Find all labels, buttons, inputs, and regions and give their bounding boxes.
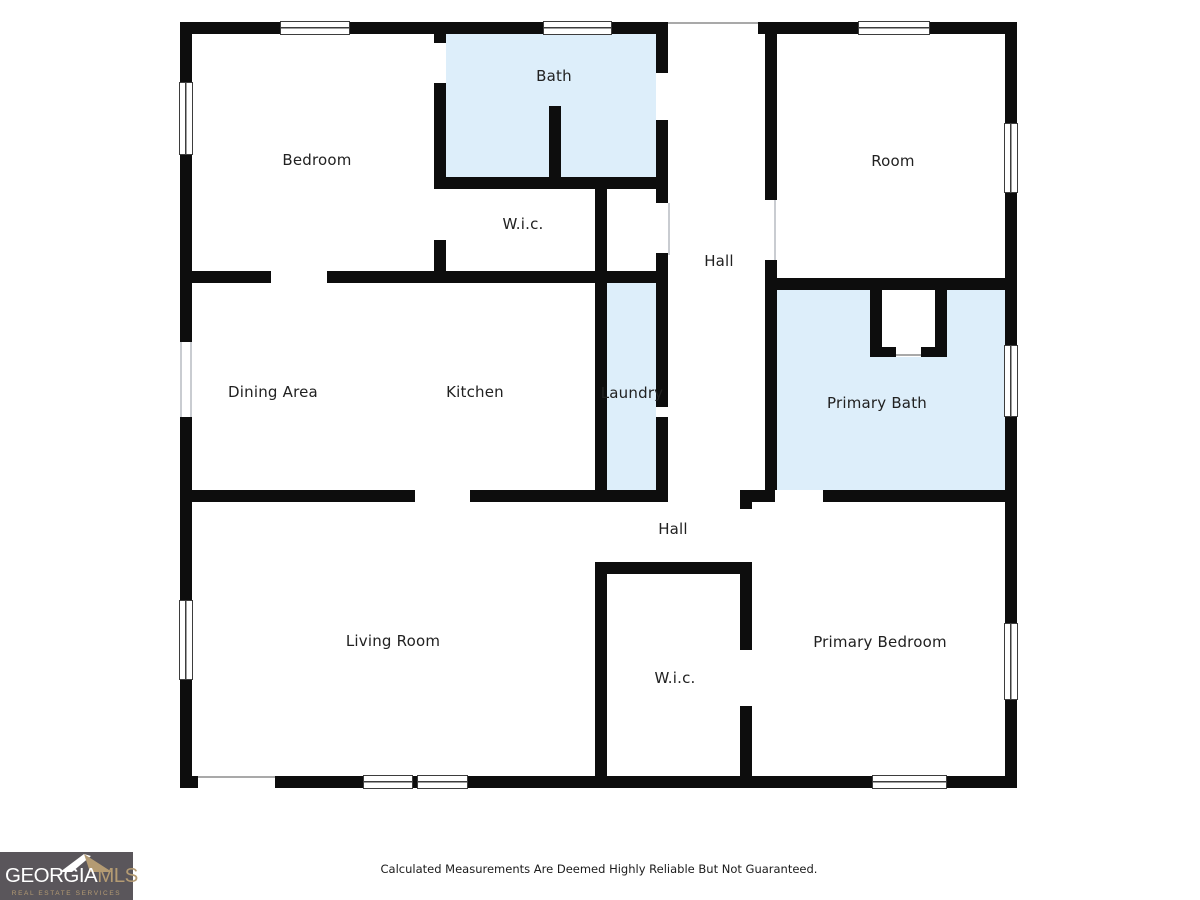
room-label-bath: Bath bbox=[454, 67, 654, 85]
wall bbox=[882, 347, 896, 357]
room-label-primary-bath: Primary Bath bbox=[777, 394, 977, 412]
wall bbox=[740, 706, 752, 788]
wall bbox=[180, 680, 192, 788]
room-label-hall-upper: Hall bbox=[619, 252, 819, 270]
opening-line bbox=[190, 342, 192, 417]
door-leaf-line bbox=[774, 200, 776, 260]
wall bbox=[549, 106, 561, 177]
wall bbox=[434, 177, 668, 189]
wall bbox=[180, 417, 192, 600]
door-leaf-line bbox=[668, 203, 670, 255]
window bbox=[179, 82, 193, 155]
wall bbox=[1005, 193, 1017, 345]
wall bbox=[1005, 22, 1017, 123]
window bbox=[363, 775, 413, 789]
wall bbox=[740, 574, 752, 650]
room-label-bedroom: Bedroom bbox=[217, 151, 417, 169]
window bbox=[1004, 623, 1018, 700]
window bbox=[1004, 345, 1018, 417]
window bbox=[1004, 123, 1018, 193]
wall bbox=[765, 278, 1005, 290]
wall bbox=[595, 562, 752, 574]
wall bbox=[823, 490, 1005, 502]
opening-line bbox=[896, 354, 921, 356]
wall bbox=[935, 278, 947, 357]
wall bbox=[470, 490, 668, 502]
window bbox=[417, 775, 468, 789]
window bbox=[858, 21, 930, 35]
wall bbox=[434, 83, 446, 189]
wall bbox=[595, 189, 607, 502]
georgia-mls-logo: GEORGIAMLS REAL ESTATE SERVICES bbox=[0, 852, 133, 900]
wall bbox=[656, 120, 668, 203]
wall bbox=[765, 290, 777, 490]
wall bbox=[180, 271, 271, 283]
wall bbox=[434, 240, 446, 283]
wall bbox=[1005, 700, 1017, 788]
logo-georgia: GEORGIA bbox=[5, 864, 97, 887]
wall bbox=[180, 490, 415, 502]
wall bbox=[1005, 417, 1017, 623]
logo-tagline: REAL ESTATE SERVICES bbox=[0, 890, 133, 897]
wall bbox=[765, 22, 777, 200]
wall bbox=[921, 347, 935, 357]
logo-mls: MLS bbox=[97, 864, 138, 887]
opening-line bbox=[198, 776, 275, 778]
wall bbox=[434, 34, 446, 43]
wall bbox=[740, 490, 775, 502]
wall bbox=[656, 22, 668, 73]
wall bbox=[327, 271, 668, 283]
window bbox=[543, 21, 612, 35]
wall bbox=[180, 22, 192, 82]
room-label-dining-area: Dining Area bbox=[173, 383, 373, 401]
logo-wordmark: GEORGIAMLS bbox=[5, 865, 138, 887]
room-label-room: Room bbox=[793, 152, 993, 170]
wall bbox=[468, 776, 872, 788]
window bbox=[280, 21, 350, 35]
room-label-laundry: Laundry bbox=[532, 384, 732, 402]
opening-line bbox=[180, 342, 182, 417]
room-label-wic-upper: W.i.c. bbox=[423, 215, 623, 233]
wall bbox=[870, 278, 882, 357]
floor-plan-canvas: Bedroom Bath Room W.i.c. Hall Dining Are… bbox=[0, 0, 1200, 900]
opening-line bbox=[668, 22, 758, 24]
wall bbox=[740, 502, 752, 509]
wall bbox=[275, 776, 363, 788]
room-label-wic-lower: W.i.c. bbox=[575, 669, 775, 687]
wall bbox=[180, 155, 192, 342]
window bbox=[872, 775, 947, 789]
room-label-hall-lower: Hall bbox=[573, 520, 773, 538]
room-label-living-room: Living Room bbox=[293, 632, 493, 650]
window bbox=[179, 600, 193, 680]
disclaimer-text: Calculated Measurements Are Deemed Highl… bbox=[180, 862, 1018, 876]
room-label-primary-bedroom: Primary Bedroom bbox=[780, 633, 980, 651]
